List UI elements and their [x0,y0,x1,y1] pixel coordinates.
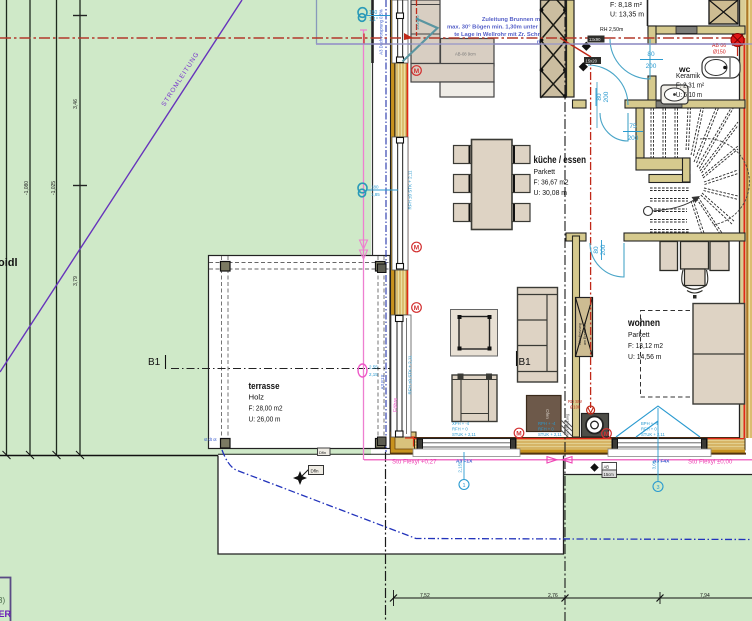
svg-text:Sto Flexyl +0,27: Sto Flexyl +0,27 [392,459,437,466]
svg-text:RFH ±0 STK + 2,11: RFH ±0 STK + 2,11 [408,355,413,395]
svg-text:max. 30° Bögen min. 1,30m unte: max. 30° Bögen min. 1,30m unter Erd... [447,25,554,31]
svg-text:F: 13,12 m2: F: 13,12 m2 [628,341,663,350]
svg-text:7,52: 7,52 [420,593,430,599]
svg-text:-1,080: -1,080 [24,181,30,195]
svg-text:Ofen: Ofen [545,409,550,419]
svg-text:F: 36,67 m2: F: 36,67 m2 [534,178,569,187]
svg-text:Keramik: Keramik [676,73,700,80]
svg-text:Ø150: Ø150 [713,50,726,56]
svg-text:Sto Flexyl ±0,00: Sto Flexyl ±0,00 [688,459,733,466]
svg-text:200: 200 [628,135,639,142]
svg-text:wohnen: wohnen [627,317,660,329]
svg-text:M: M [414,305,419,312]
svg-text:Föhre: Föhre [393,398,399,412]
svg-text:2,155: 2,155 [458,461,463,473]
svg-text:Parkett: Parkett [628,330,650,339]
svg-text:BPH + -4: BPH + -4 [641,421,659,426]
svg-text:RFH + 0: RFH + 0 [452,427,468,432]
svg-text:RPH + -4: RPH + -4 [538,421,556,426]
svg-text:F: 2,31 m²: F: 2,31 m² [676,83,705,90]
svg-text:80: 80 [593,246,600,254]
svg-text:15x20: 15x20 [586,59,598,64]
svg-text:STUK + 2,11: STUK + 2,11 [538,432,562,437]
svg-text:RH 2,50m: RH 2,50m [600,27,623,33]
svg-text:3: 3 [656,485,659,491]
svg-text:180: 180 [371,185,379,190]
svg-text:STUK + 2,11: STUK + 2,11 [452,432,476,437]
svg-text:200: 200 [646,63,657,70]
svg-text:15cm: 15cm [604,472,615,477]
svg-text:A3 F1X: A3 F1X [380,374,385,389]
svg-text:7,94: 7,94 [700,593,710,599]
svg-text:RFH + 0: RFH + 0 [641,427,657,432]
svg-text:M: M [414,68,419,75]
svg-text:A3 Dachvorsprung 0,5%: A3 Dachvorsprung 0,5% [379,9,384,55]
svg-text:F: 28,00 m2: F: 28,00 m2 [249,404,283,413]
svg-text:75: 75 [629,123,637,130]
svg-text:M: M [604,431,609,438]
svg-text:3,79: 3,79 [73,276,79,286]
svg-text:80: 80 [596,93,603,101]
svg-text:Dfln: Dfln [319,450,326,455]
svg-text:3): 3) [0,596,5,605]
svg-text:terrasse: terrasse [249,381,280,391]
svg-text:AB-08 9cm: AB-08 9cm [455,52,476,57]
svg-text:Wandheizung: Wandheizung [578,323,582,345]
svg-text:STUK + 2,11: STUK + 2,11 [641,432,665,437]
svg-text:-1,025: -1,025 [51,181,57,195]
svg-text:Holz: Holz [249,393,265,402]
svg-text:U: 6,10 m: U: 6,10 m [676,92,702,99]
svg-text:U: 26,00 m: U: 26,00 m [249,415,281,424]
svg-text:AB: AB [604,465,610,470]
svg-text:U: 30,08 m: U: 30,08 m [534,188,568,197]
svg-text:RFH ±0 STK + 2,11: RFH ±0 STK + 2,11 [408,170,413,210]
svg-text:180: 180 [369,10,378,16]
svg-text:RD SW: RD SW [568,399,582,404]
svg-text:U: 14,56 m: U: 14,56 m [628,352,662,361]
svg-text:1,85: 1,85 [371,192,380,197]
svg-text:1,1°: 1,1° [369,17,378,23]
svg-text:Dfln: Dfln [311,469,319,474]
svg-text:B1: B1 [148,357,161,368]
svg-text:XPH + -4: XPH + -4 [452,421,470,426]
svg-text:U: 13,35 m: U: 13,35 m [610,10,644,19]
svg-text:B1: B1 [519,357,532,368]
svg-text:M: M [414,245,419,252]
svg-text:80: 80 [647,51,655,58]
svg-text:oidl: oidl [0,257,18,269]
svg-text:M: M [516,431,521,438]
svg-text:Ø100: Ø100 [570,405,581,410]
svg-text:1: 1 [462,483,465,489]
svg-text:Parkett: Parkett [534,167,556,176]
svg-text:ER: ER [0,609,12,619]
svg-text:13x90: 13x90 [589,37,601,42]
svg-text:te Lage in Wellrohr mit Zr. Sc: te Lage in Wellrohr mit Zr. Schrumpf [454,32,554,38]
svg-text:200: 200 [603,91,610,102]
svg-text:2,76: 2,76 [548,593,558,599]
svg-text:100/220: 100/220 [415,15,420,30]
svg-text:RFH + 0: RFH + 0 [538,427,554,432]
svg-text:3,46: 3,46 [73,99,79,109]
svg-text:2,55: 2,55 [369,365,378,370]
svg-text:2,15: 2,15 [369,372,378,377]
svg-text:3,00: 3,00 [652,460,657,469]
svg-text:küche / essen: küche / essen [534,154,587,166]
svg-text:Wandheizung: Wandheizung [566,414,570,437]
svg-text:am Ersatzrohr: am Ersatzrohr [583,322,587,345]
svg-text:st dt ot: st dt ot [204,437,217,442]
svg-text:F: 8,18 m²: F: 8,18 m² [610,0,642,9]
